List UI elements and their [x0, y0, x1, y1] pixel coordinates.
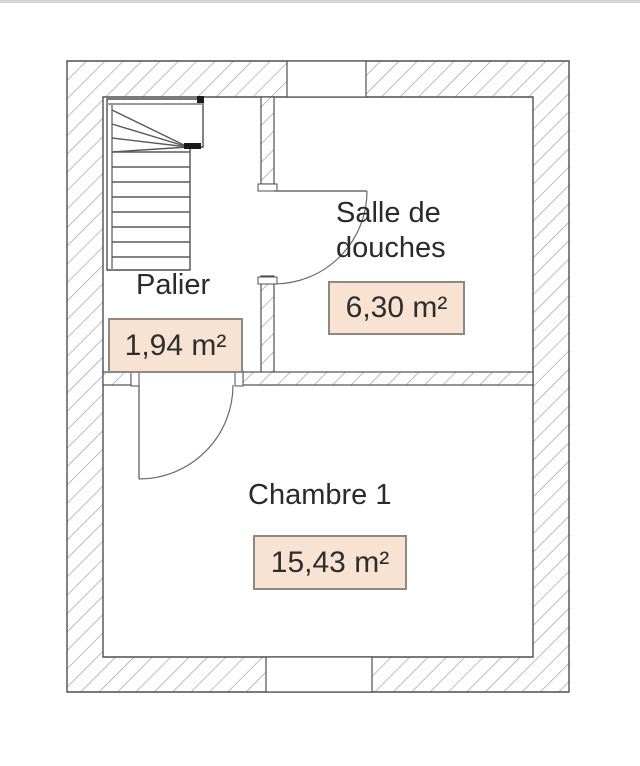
room-label-chambre-1: Chambre 1 — [248, 478, 391, 513]
window-bottom-wall — [266, 657, 372, 692]
door-jamb — [235, 371, 243, 386]
interior-wall-horizontal — [103, 371, 533, 386]
door-jamb — [258, 277, 277, 284]
door-jamb — [131, 371, 139, 386]
door-jamb — [258, 184, 277, 191]
area-badge-palier: 1,94 m² — [108, 318, 243, 373]
interior-wall-vertical — [258, 97, 277, 385]
window-top-wall — [287, 61, 366, 97]
staircase — [107, 96, 204, 270]
door-chambre-1 — [139, 385, 233, 479]
stair-newel-mark-pivot — [184, 143, 201, 149]
stair-outline — [107, 99, 203, 270]
stair-newel-mark-top — [197, 96, 204, 103]
floor-plan-drawing — [0, 0, 640, 766]
floor-plan: Palier Salle de douches Chambre 1 1,94 m… — [0, 0, 640, 766]
door-arc-chambre-1 — [139, 385, 233, 479]
area-badge-chambre-1: 15,43 m² — [253, 535, 407, 590]
room-label-salle-de-douches: Salle de douches — [336, 196, 478, 266]
area-badge-salle-de-douches: 6,30 m² — [328, 281, 465, 335]
room-label-palier: Palier — [136, 268, 210, 303]
